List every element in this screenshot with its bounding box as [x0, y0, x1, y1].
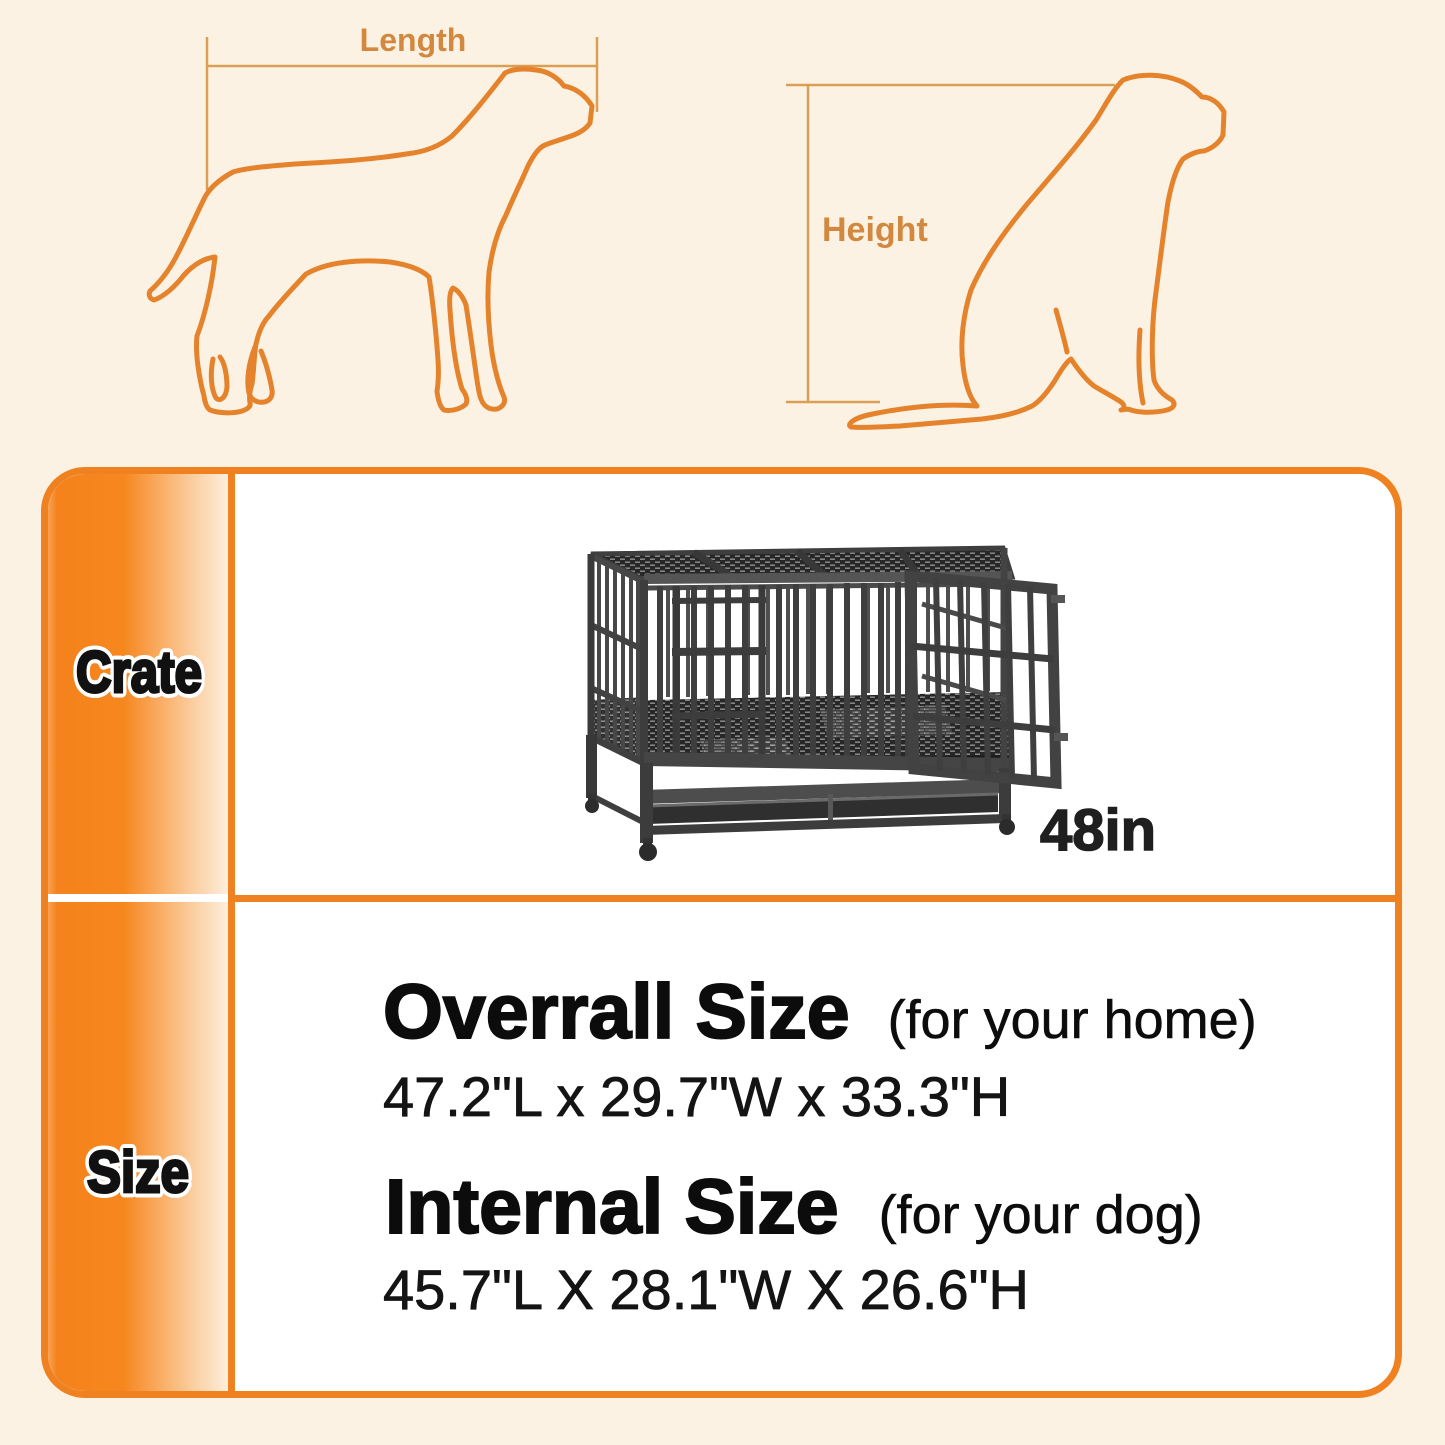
svg-text:Size: Size	[87, 1140, 189, 1205]
svg-text:Crate: Crate	[76, 640, 202, 705]
svg-text:Height: Height	[822, 211, 928, 249]
svg-text:Length: Length	[360, 22, 467, 58]
